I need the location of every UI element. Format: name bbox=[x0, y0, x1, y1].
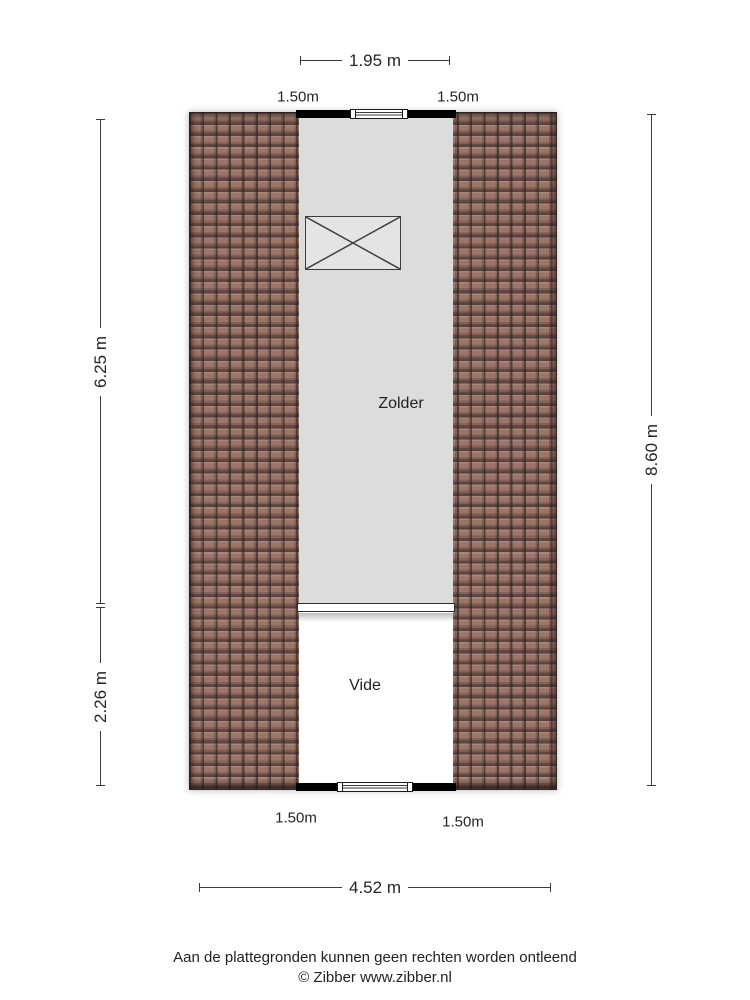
dimension-left-lower-label: 2.26 m bbox=[91, 663, 111, 731]
dimension-bottom-width-label: 4.52 m bbox=[342, 878, 408, 898]
clearance-label-bottom-left: 1.50m bbox=[275, 810, 317, 827]
dimension-left-upper-label: 6.25 m bbox=[91, 328, 111, 396]
zolder-floor bbox=[299, 117, 453, 603]
room-label-vide: Vide bbox=[349, 677, 381, 695]
dimension-tick bbox=[550, 883, 551, 892]
window-bottom bbox=[337, 782, 413, 792]
vide-floor-shadow bbox=[299, 613, 453, 622]
dimension-tick bbox=[647, 114, 656, 115]
window-top bbox=[350, 109, 408, 119]
shaft-cross-icon bbox=[306, 217, 400, 269]
window-end-block bbox=[402, 109, 408, 119]
dimension-tick bbox=[647, 785, 656, 786]
dimension-tick bbox=[199, 883, 200, 892]
clearance-label-bottom-right: 1.50m bbox=[442, 814, 484, 831]
room-label-zolder: Zolder bbox=[378, 395, 423, 413]
clearance-label-top-left: 1.50m bbox=[277, 89, 319, 106]
dimension-left-upper: 6.25 m bbox=[100, 120, 101, 603]
dimension-tick bbox=[96, 607, 105, 608]
dimension-right-label: 8.60 m bbox=[642, 416, 662, 484]
footer: Aan de plattegronden kunnen geen rechten… bbox=[0, 948, 750, 988]
dimension-bottom-width: 4.52 m bbox=[200, 887, 550, 888]
stair-railing bbox=[297, 603, 455, 612]
window-end-block bbox=[337, 782, 343, 792]
dimension-left-lower: 2.26 m bbox=[100, 608, 101, 785]
shaft-box bbox=[305, 216, 401, 270]
dimension-tick bbox=[96, 119, 105, 120]
footer-disclaimer: Aan de plattegronden kunnen geen rechten… bbox=[0, 948, 750, 968]
dimension-tick bbox=[449, 56, 450, 65]
dimension-top-width-label: 1.95 m bbox=[342, 51, 408, 71]
window-end-block bbox=[407, 782, 413, 792]
floorplan-canvas: 1.95 m 1.50m 1.50m Zolder Vide 6.25 m 2.… bbox=[0, 0, 750, 1000]
dimension-top-width: 1.95 m bbox=[301, 60, 449, 61]
vide-floor bbox=[299, 612, 453, 783]
window-end-block bbox=[350, 109, 356, 119]
footer-credit: © Zibber www.zibber.nl bbox=[0, 968, 750, 988]
dimension-tick bbox=[96, 785, 105, 786]
dimension-right: 8.60 m bbox=[651, 115, 652, 785]
dimension-tick bbox=[300, 56, 301, 65]
dimension-tick bbox=[96, 603, 105, 604]
clearance-label-top-right: 1.50m bbox=[437, 89, 479, 106]
